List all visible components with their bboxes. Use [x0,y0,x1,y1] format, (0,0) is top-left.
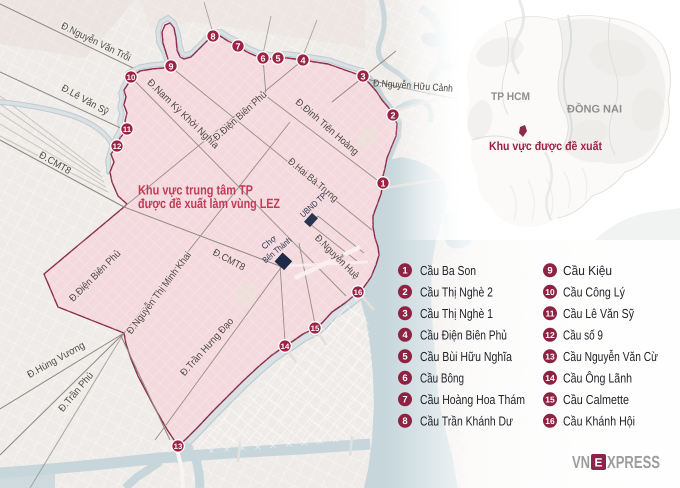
svg-text:13: 13 [545,352,555,362]
svg-text:9: 9 [168,62,173,72]
svg-text:E: E [594,456,602,470]
svg-text:Cầu Ba Son: Cầu Ba Son [420,263,476,278]
svg-text:4: 4 [300,56,305,66]
svg-text:11: 11 [546,309,555,319]
svg-text:11: 11 [123,125,132,134]
svg-text:4: 4 [402,330,408,341]
svg-text:5: 5 [402,352,408,363]
svg-text:16: 16 [354,288,363,297]
svg-text:7: 7 [235,42,240,52]
svg-text:XPRESS: XPRESS [607,452,660,472]
svg-text:8: 8 [402,416,407,427]
svg-text:Cầu Thị Nghè 2: Cầu Thị Nghè 2 [420,284,493,299]
svg-text:Cầu số 9: Cầu số 9 [563,327,603,342]
svg-text:15: 15 [545,395,555,405]
svg-text:Cầu Trần Khánh Dư: Cầu Trần Khánh Dư [420,413,513,428]
svg-text:6: 6 [260,54,265,64]
svg-text:15: 15 [311,324,320,333]
svg-text:10: 10 [545,287,555,297]
svg-text:Cầu Điện Biên Phủ: Cầu Điện Biên Phủ [420,327,507,342]
svg-text:12: 12 [545,330,555,340]
svg-text:Cầu Calmette: Cầu Calmette [563,392,629,407]
svg-text:Khu vực được đề xuất: Khu vực được đề xuất [489,139,602,153]
svg-text:14: 14 [281,342,290,351]
svg-text:Cầu Thị Nghè 1: Cầu Thị Nghè 1 [420,306,493,321]
svg-text:Cầu Khánh Hội: Cầu Khánh Hội [563,413,635,428]
svg-text:Cầu Nguyễn Văn Cừ: Cầu Nguyễn Văn Cừ [563,349,658,364]
svg-text:9: 9 [547,266,552,277]
svg-text:7: 7 [402,395,407,406]
svg-text:14: 14 [545,373,555,383]
svg-text:Cầu Công Lý: Cầu Công Lý [563,284,625,299]
svg-text:Cầu Bùi Hữu Nghĩa: Cầu Bùi Hữu Nghĩa [420,349,513,364]
svg-text:3: 3 [360,72,365,82]
svg-text:VN: VN [572,452,590,472]
svg-text:12: 12 [113,142,122,151]
svg-text:10: 10 [127,73,136,82]
svg-text:ĐỒNG NAI: ĐỒNG NAI [567,103,622,116]
svg-text:6: 6 [402,373,407,384]
svg-text:Cầu Lê Văn Sỹ: Cầu Lê Văn Sỹ [563,306,634,321]
svg-text:1: 1 [380,179,385,189]
svg-text:2: 2 [402,287,407,298]
svg-text:13: 13 [174,442,183,451]
svg-text:Cầu Kiệu: Cầu Kiệu [563,263,612,278]
svg-text:được đề xuất làm vùng LEZ: được đề xuất làm vùng LEZ [138,196,280,211]
svg-text:5: 5 [275,54,280,64]
svg-text:Cầu Ông Lãnh: Cầu Ông Lãnh [563,370,632,385]
svg-text:3: 3 [402,309,407,320]
svg-text:TP HCM: TP HCM [491,91,530,103]
svg-text:1: 1 [402,266,408,277]
svg-text:8: 8 [210,32,215,42]
svg-text:16: 16 [545,416,555,426]
svg-text:Cầu Bông: Cầu Bông [420,370,464,385]
svg-text:Cầu Hoàng Hoa Thám: Cầu Hoàng Hoa Thám [420,392,525,407]
svg-text:2: 2 [390,111,395,121]
